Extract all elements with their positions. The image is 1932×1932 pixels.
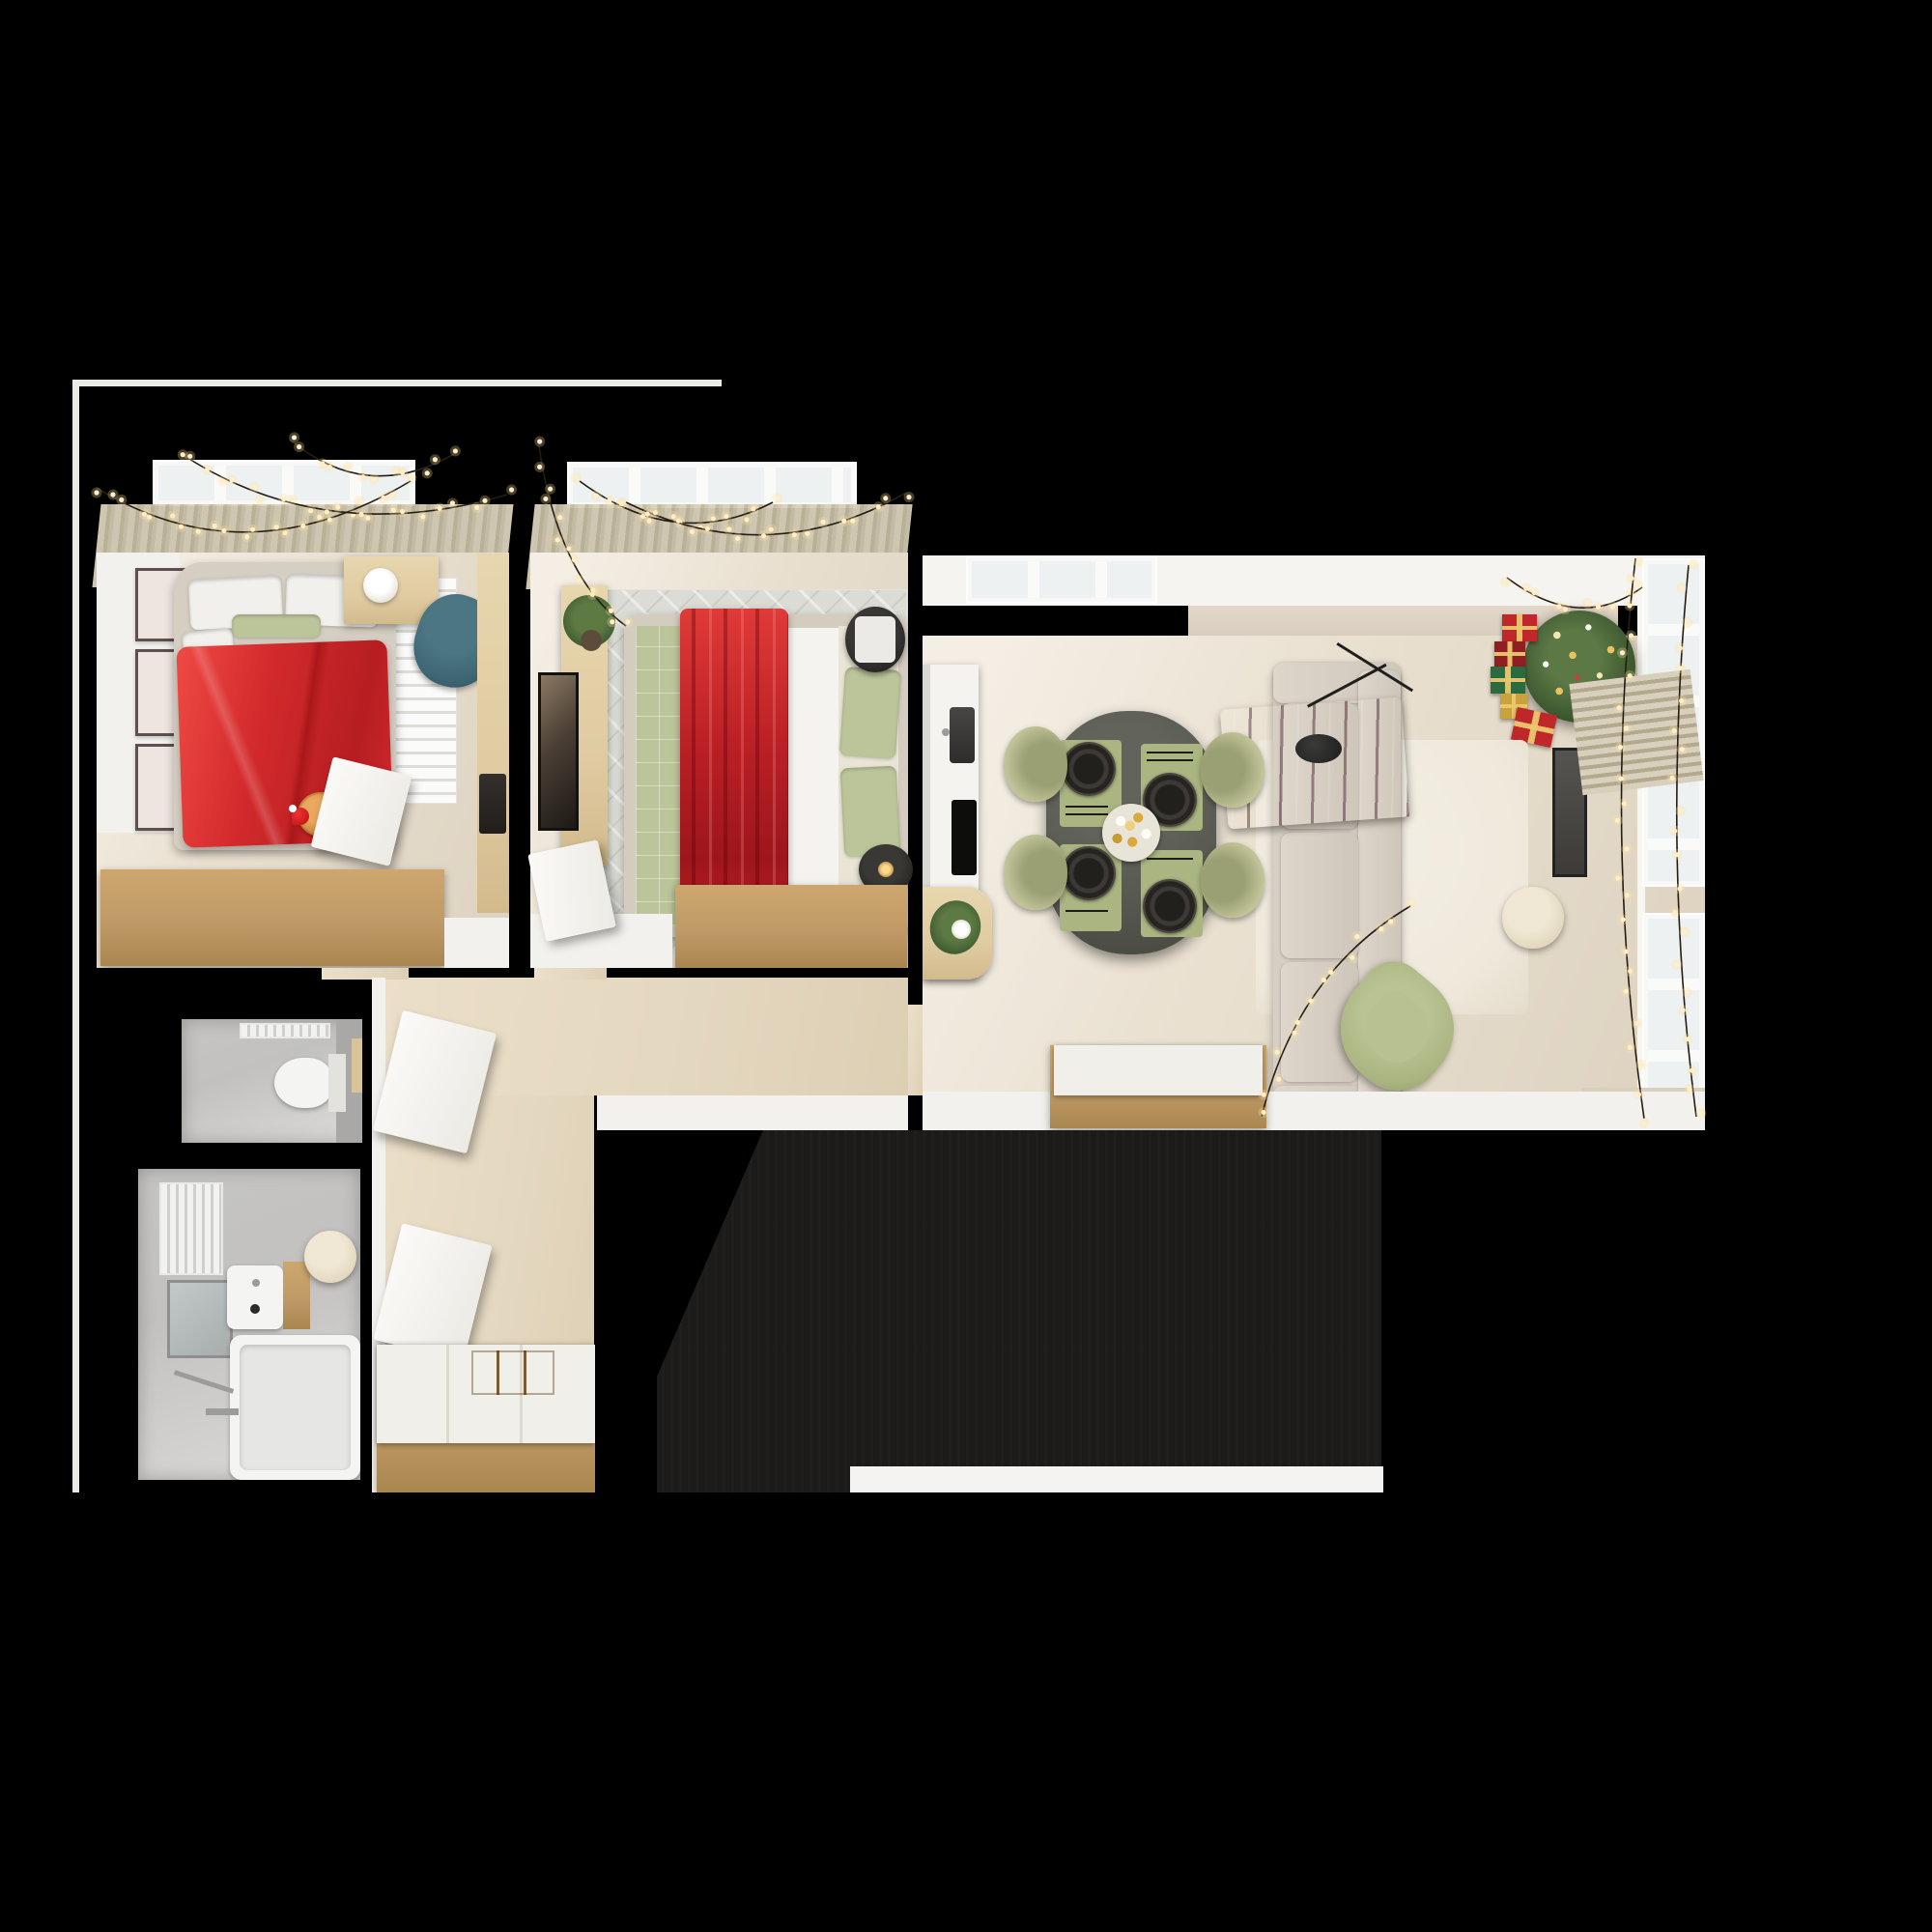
- armchair-cushion: [1352, 984, 1442, 1074]
- cutlery-1: [1065, 806, 1108, 808]
- cutlery-1b: [1065, 813, 1108, 815]
- bench-open-compartment: [471, 1350, 554, 1395]
- shower-bar: [174, 1370, 234, 1394]
- bedroom2-window-panes: [573, 468, 851, 502]
- santa-hat-tip: [289, 805, 297, 812]
- living-room: [923, 415, 1705, 1130]
- bedroom2-plant: [563, 595, 615, 655]
- wc-room: [182, 1019, 362, 1143]
- living-window-top-panes: [972, 561, 1151, 598]
- bedside-lamp: [363, 568, 398, 603]
- dining-chair-3: [1004, 835, 1067, 910]
- round-side-table: [1502, 887, 1564, 949]
- bedroom1-window: [153, 460, 415, 506]
- gift-box-green: [1491, 667, 1525, 694]
- bedroom2-speaker-table: [845, 607, 905, 672]
- arc-lamp-shade: [1295, 734, 1342, 763]
- plate-3: [1062, 846, 1116, 900]
- bed1-accent-pillow: [232, 614, 321, 638]
- plate-4: [1143, 879, 1197, 933]
- bedroom-2: [530, 415, 908, 968]
- basin-faucet: [252, 1279, 260, 1287]
- gift-box-red-1: [1502, 614, 1537, 641]
- basin-cabinet: [283, 1262, 310, 1329]
- plate-1: [1062, 742, 1116, 796]
- bedroom1-bottom-ledge: [444, 918, 509, 968]
- bed2-pillow-2: [840, 766, 901, 858]
- living-bench-top: [1054, 1045, 1263, 1095]
- outside-white-wall-bar: [850, 1466, 1383, 1492]
- towel-radiator: [159, 1182, 223, 1275]
- bathroom-mirror: [167, 1280, 233, 1358]
- living-window-top: [966, 555, 1157, 604]
- candle: [878, 862, 894, 877]
- ornament-centerpiece-bowl: [1102, 804, 1160, 862]
- plant-pot: [581, 630, 602, 651]
- outer-wall-top: [72, 380, 722, 386]
- cutlery-4: [1147, 858, 1193, 860]
- bedroom1-sideboard: [100, 869, 444, 966]
- cutlery-3: [1065, 910, 1108, 912]
- living-window-right-bottom-panes: [1648, 919, 1699, 1100]
- living-bottom-ledge: [923, 1092, 1705, 1130]
- bedroom2-tv: [538, 672, 579, 831]
- bedroom2-dresser: [675, 885, 907, 968]
- bedroom2-window: [567, 462, 857, 508]
- dining-chair-4: [1201, 842, 1264, 918]
- hallway-bottom-ledge: [597, 1095, 908, 1130]
- living-door-threshold: [908, 1005, 923, 1095]
- bedroom1-window-panes: [158, 466, 410, 500]
- toilet-tank: [328, 1054, 346, 1112]
- basin-drain: [250, 1304, 260, 1314]
- kitchen-cooktop: [952, 800, 977, 875]
- cutlery-2b: [1147, 759, 1193, 761]
- wc-door-edge: [352, 1038, 362, 1093]
- washbasin: [227, 1265, 283, 1329]
- bedroom1-door-threshold: [322, 968, 409, 980]
- bathtub-basin: [240, 1345, 351, 1470]
- kitchen-faucet: [942, 728, 950, 736]
- apartment-floorplan-render: [0, 0, 1932, 1932]
- dining-table: [1046, 711, 1216, 954]
- bathroom-round-rug: [304, 1231, 356, 1283]
- toilet-bowl: [274, 1058, 332, 1108]
- living-bench: [1050, 1045, 1266, 1128]
- bed2-white-band: [788, 628, 840, 923]
- bedroom-1: [97, 415, 509, 968]
- laptop: [479, 774, 506, 834]
- bed2-pillow-1: [839, 667, 901, 759]
- bedroom1-wall-desk: [477, 554, 509, 913]
- entry-storage-bench: [377, 1345, 595, 1492]
- bathroom: [138, 1169, 360, 1480]
- kitchen-sink: [950, 707, 975, 763]
- outer-wall-left: [72, 380, 79, 1492]
- bathtub: [230, 1335, 360, 1480]
- sofa-seat-2: [1281, 833, 1358, 958]
- bedroom2-door-threshold: [534, 968, 607, 980]
- dining-chair-2: [1201, 732, 1264, 808]
- glass-vase: [952, 920, 971, 939]
- living-window-right-bottom: [1642, 913, 1705, 1106]
- wc-towel-rail: [240, 1023, 330, 1038]
- gift-box-dark-red: [1494, 641, 1525, 667]
- white-speaker: [855, 616, 895, 663]
- dining-chair-1: [1004, 726, 1067, 802]
- santa-hat: [292, 808, 309, 825]
- cutlery-2: [1147, 752, 1193, 753]
- radiator-top-right: [1569, 669, 1703, 795]
- kitchen-wood-table: [923, 887, 992, 980]
- tub-faucet: [206, 1408, 239, 1415]
- outside-cutaway-area: [618, 1130, 1381, 1492]
